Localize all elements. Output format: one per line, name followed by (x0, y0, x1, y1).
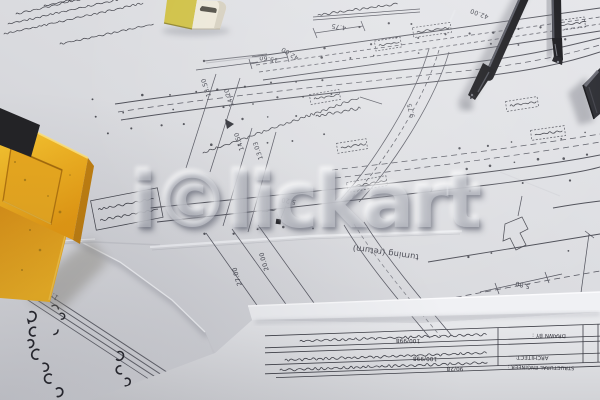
drawn-by-fragment: 100/998 (396, 337, 421, 343)
survey-point-marker (276, 219, 282, 225)
drawn-by-label: DRAWN BY : (532, 332, 566, 339)
engineer-fragment: 90/28 (446, 365, 463, 371)
photo-of-blueprints: 1:200 SCALE 1 2 (0, 0, 600, 400)
tip-glint (557, 61, 559, 63)
screwdriver-2 (548, 0, 563, 65)
tape-measure-end (162, 0, 230, 36)
structural-engineer-label: STRUCTURAL ENGINEER : (507, 363, 574, 370)
architect-fragment: 100/998 (413, 355, 438, 361)
photo-scene: 1:200 SCALE 1 2 (0, 0, 600, 400)
architect-label: ARCHITECT: (515, 354, 548, 361)
tip-glint (471, 94, 473, 96)
